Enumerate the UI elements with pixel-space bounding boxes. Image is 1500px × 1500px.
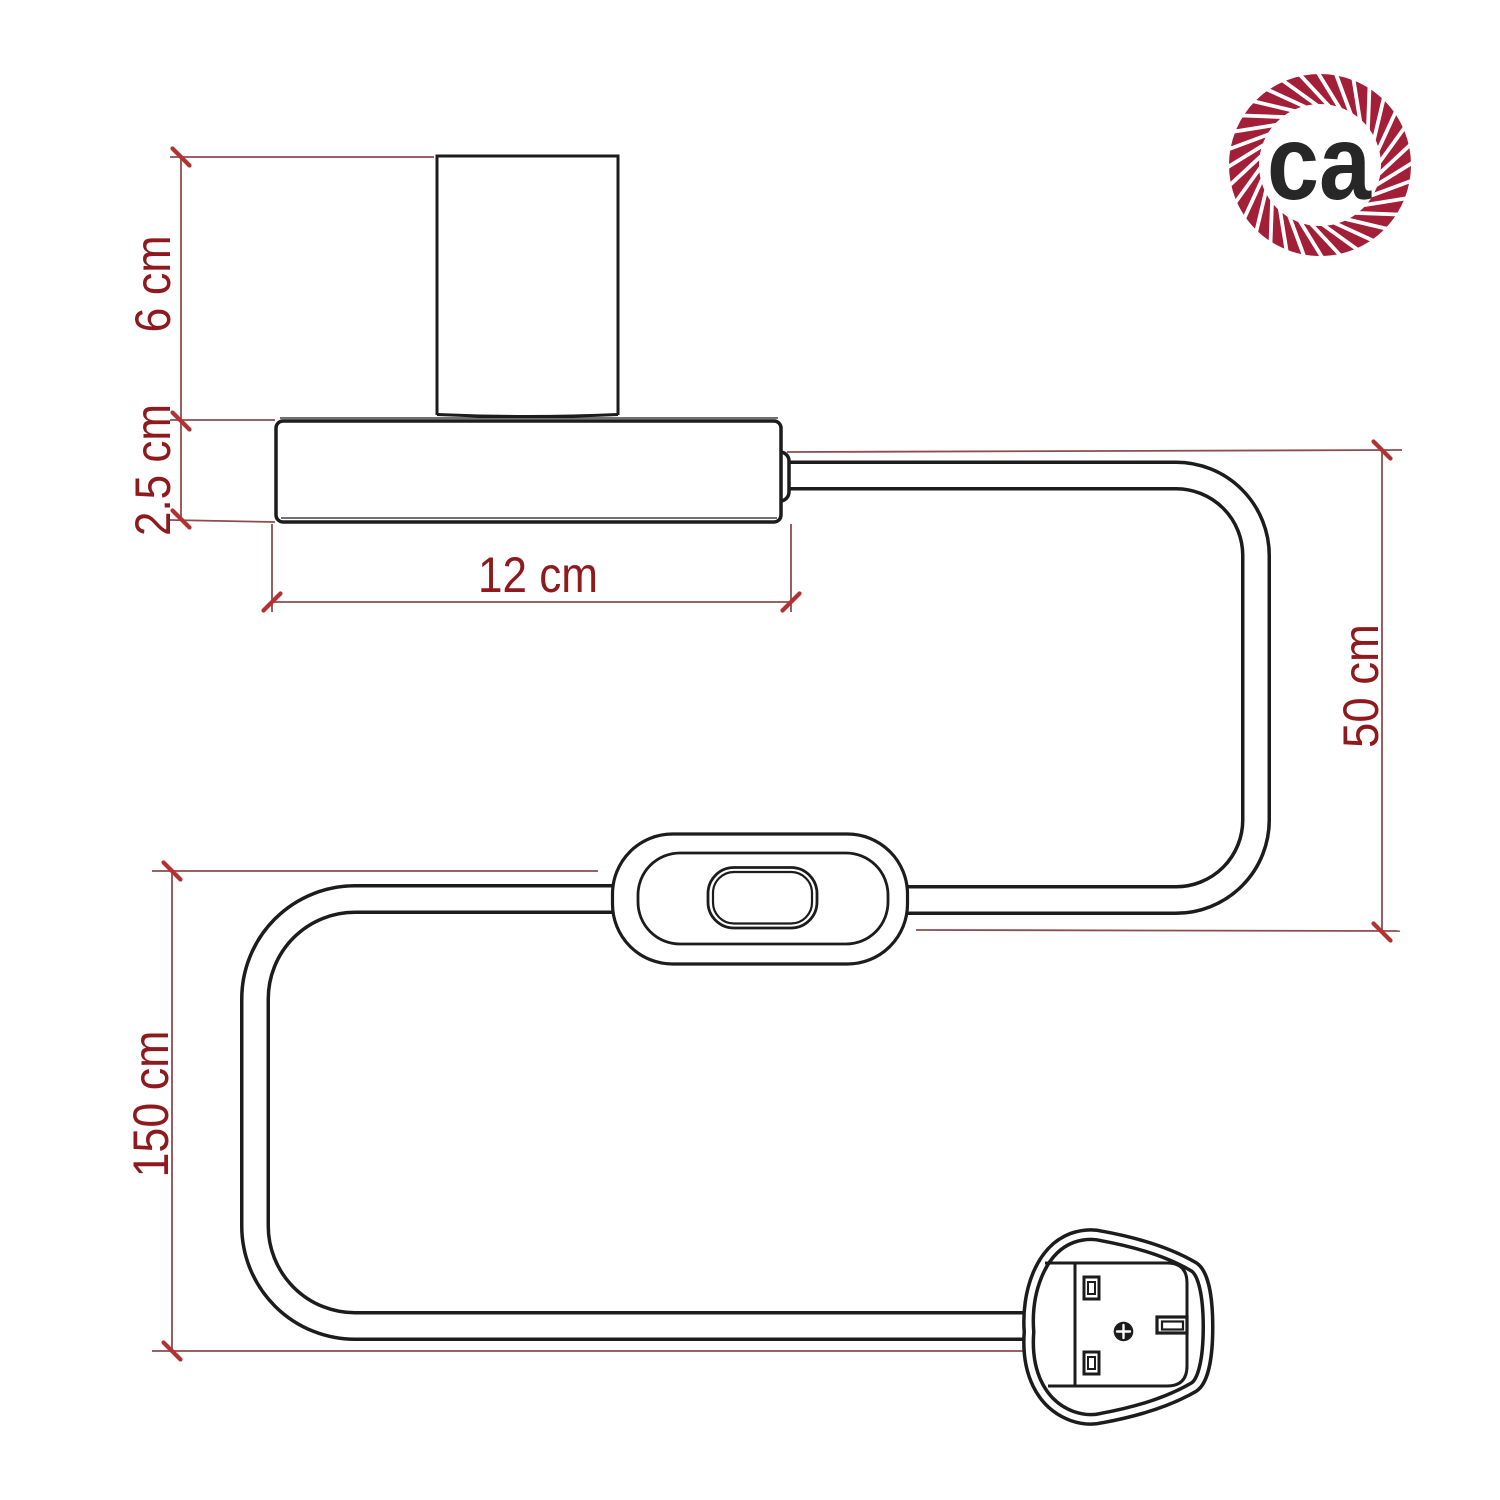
svg-text:2.5 cm: 2.5 cm [125,404,181,536]
svg-text:12 cm: 12 cm [478,547,598,603]
svg-text:ca: ca [1267,104,1372,222]
svg-text:150 cm: 150 cm [123,1031,179,1178]
svg-text:6 cm: 6 cm [125,236,181,333]
svg-text:50 cm: 50 cm [1333,624,1389,748]
